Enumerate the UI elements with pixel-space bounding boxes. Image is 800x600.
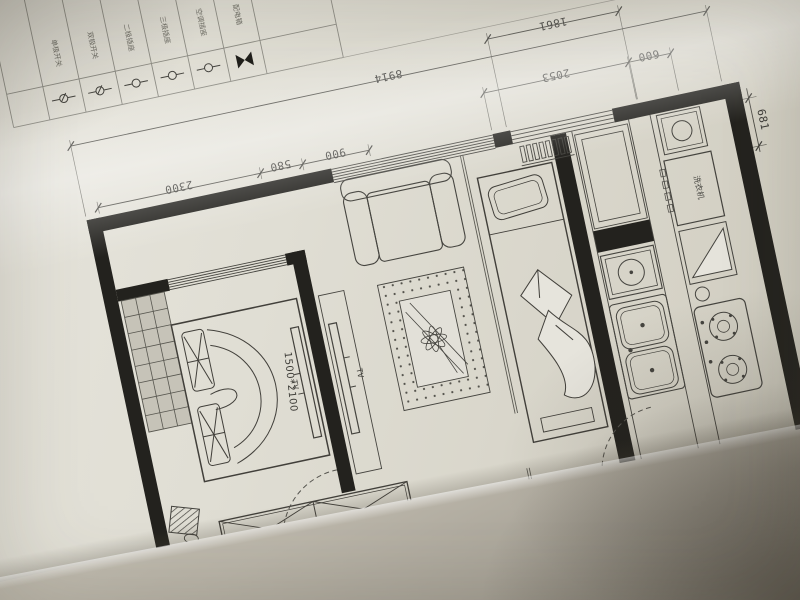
wash-basin — [600, 245, 662, 299]
legend-label: 单极开关 — [49, 38, 64, 67]
corner-shelf — [679, 222, 737, 285]
wall-top-left — [87, 168, 334, 234]
distribution-box-icon — [235, 52, 254, 69]
table-border-extension — [303, 0, 800, 66]
wall-bottom-3 — [666, 436, 800, 483]
legend-label: 三极插座 — [158, 15, 173, 44]
sofa — [339, 158, 467, 267]
dimension-label: 1861 — [538, 14, 569, 33]
dimension-label: 2300 — [163, 178, 194, 197]
balcony-window — [331, 135, 495, 183]
switch-symbol-icon — [51, 91, 76, 105]
pillow — [197, 403, 231, 466]
counter-top — [575, 124, 648, 229]
pillow — [486, 173, 549, 222]
dimension-label: 8914 — [373, 67, 404, 86]
socket-symbol-icon — [160, 69, 185, 82]
decor-item — [168, 506, 201, 543]
floor-plan-drawing: 单极开关 双极开关 二极插座 三极插座 空调插座 配电箱 — [0, 0, 800, 600]
blueprint-sheet: 单极开关 双极开关 二极插座 三极插座 空调插座 配电箱 — [0, 0, 800, 600]
wall-top-right — [612, 82, 742, 123]
living-room: TV — [212, 155, 536, 551]
living-tv-label: TV — [354, 367, 365, 378]
switch-symbol-icon — [87, 83, 112, 97]
legend-label: 双极开关 — [86, 31, 101, 60]
photo-of-floor-plan: 单极开关 双极开关 二极插座 三极插座 空调插座 配电箱 — [0, 0, 800, 600]
dimension-labels: 2300 580 900 8914 2053 600 1861 681 — [146, 0, 771, 255]
water-heater — [656, 107, 707, 155]
wardrobe — [219, 482, 414, 557]
legend-symbols — [51, 52, 254, 108]
pillow — [181, 329, 215, 392]
bath-wall-stub — [593, 219, 654, 253]
wall-top-pier — [493, 130, 514, 147]
counter-edge — [650, 115, 722, 455]
dimension-label: 900 — [323, 145, 347, 162]
bed-foot-board — [541, 408, 595, 433]
bed-throw-swirl — [197, 318, 290, 466]
socket-symbol-icon — [196, 61, 221, 74]
kitchen-sink — [609, 294, 686, 400]
floor-drain — [694, 286, 711, 303]
legend-label: 二极插座 — [122, 23, 137, 52]
dimension-label: 2053 — [540, 66, 571, 85]
double-bed — [171, 299, 329, 482]
dimension-label: 580 — [269, 157, 293, 174]
gas-stove — [693, 297, 763, 398]
wall-bottom-2 — [351, 481, 607, 550]
washing-machine — [658, 151, 725, 227]
dimension-label: 600 — [637, 47, 661, 64]
legend-label: 配电箱 — [231, 3, 244, 25]
washer-label: 洗衣机 — [692, 175, 707, 201]
dimension-label: 681 — [754, 108, 771, 132]
rug — [377, 267, 490, 410]
legend-label: 空调插座 — [194, 8, 209, 37]
bedroom-bay-window — [168, 255, 287, 290]
dimension-chains — [62, 0, 768, 293]
socket-symbol-icon — [124, 77, 149, 90]
wall-bottom-1 — [162, 549, 288, 591]
